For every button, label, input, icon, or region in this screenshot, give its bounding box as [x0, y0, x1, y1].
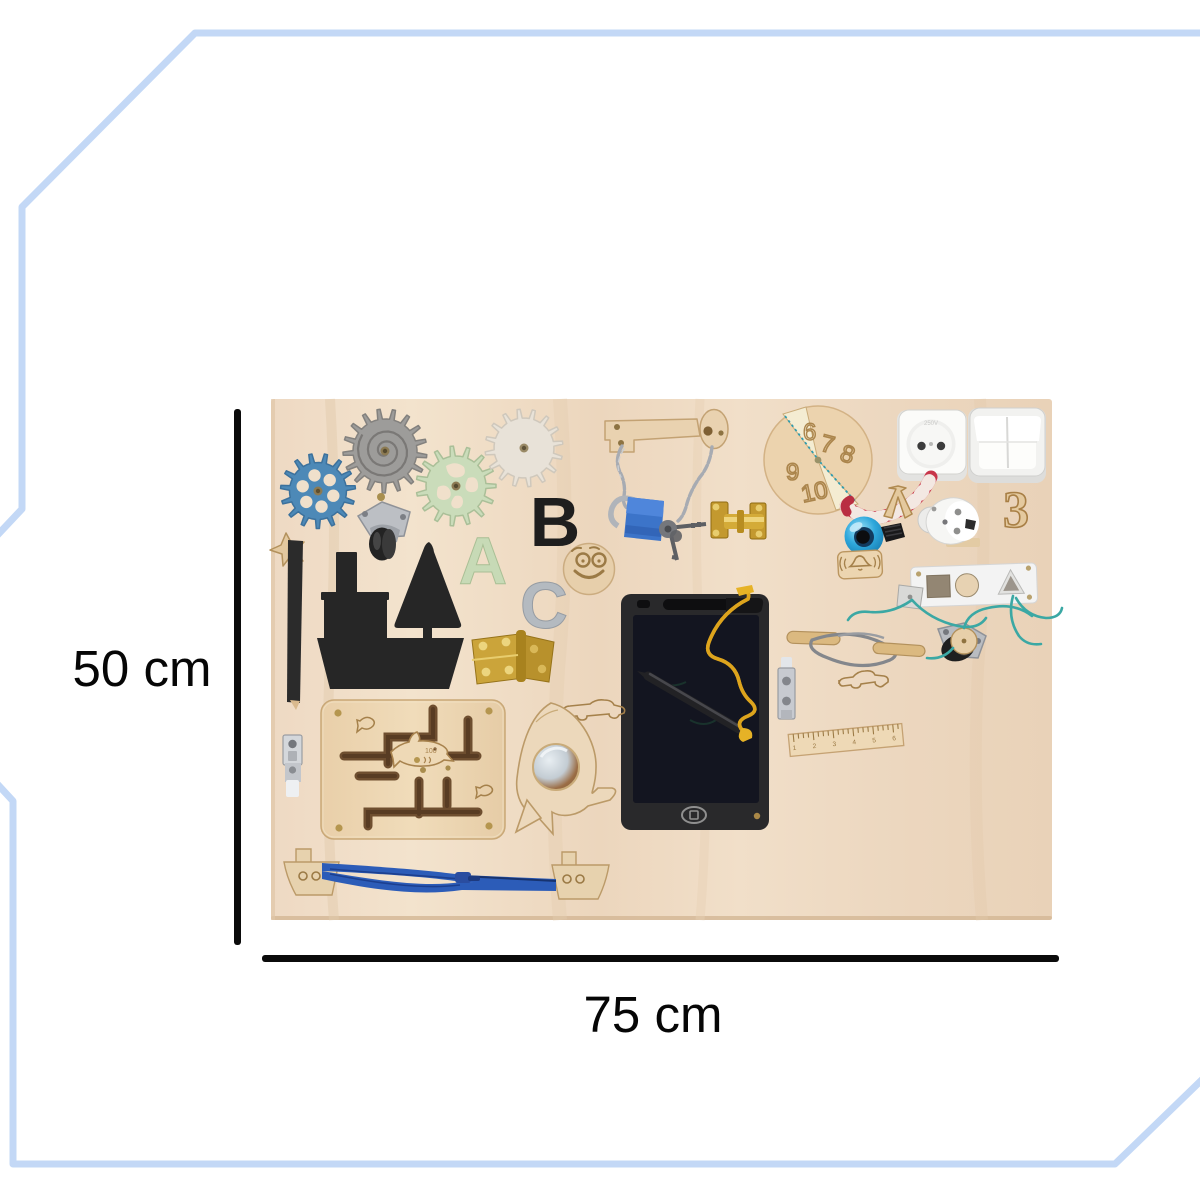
svg-text:3: 3 — [1003, 482, 1029, 539]
svg-text:250V: 250V — [924, 421, 938, 427]
svg-text:A: A — [459, 524, 507, 599]
svg-text:C: C — [520, 568, 568, 642]
svg-text:6: 6 — [803, 419, 816, 446]
svg-text:10: 10 — [799, 476, 831, 508]
svg-text:100: 100 — [425, 748, 437, 755]
svg-text:9: 9 — [786, 459, 799, 486]
svg-text:75 cm: 75 cm — [584, 986, 723, 1043]
svg-text:50 cm: 50 cm — [73, 640, 212, 697]
